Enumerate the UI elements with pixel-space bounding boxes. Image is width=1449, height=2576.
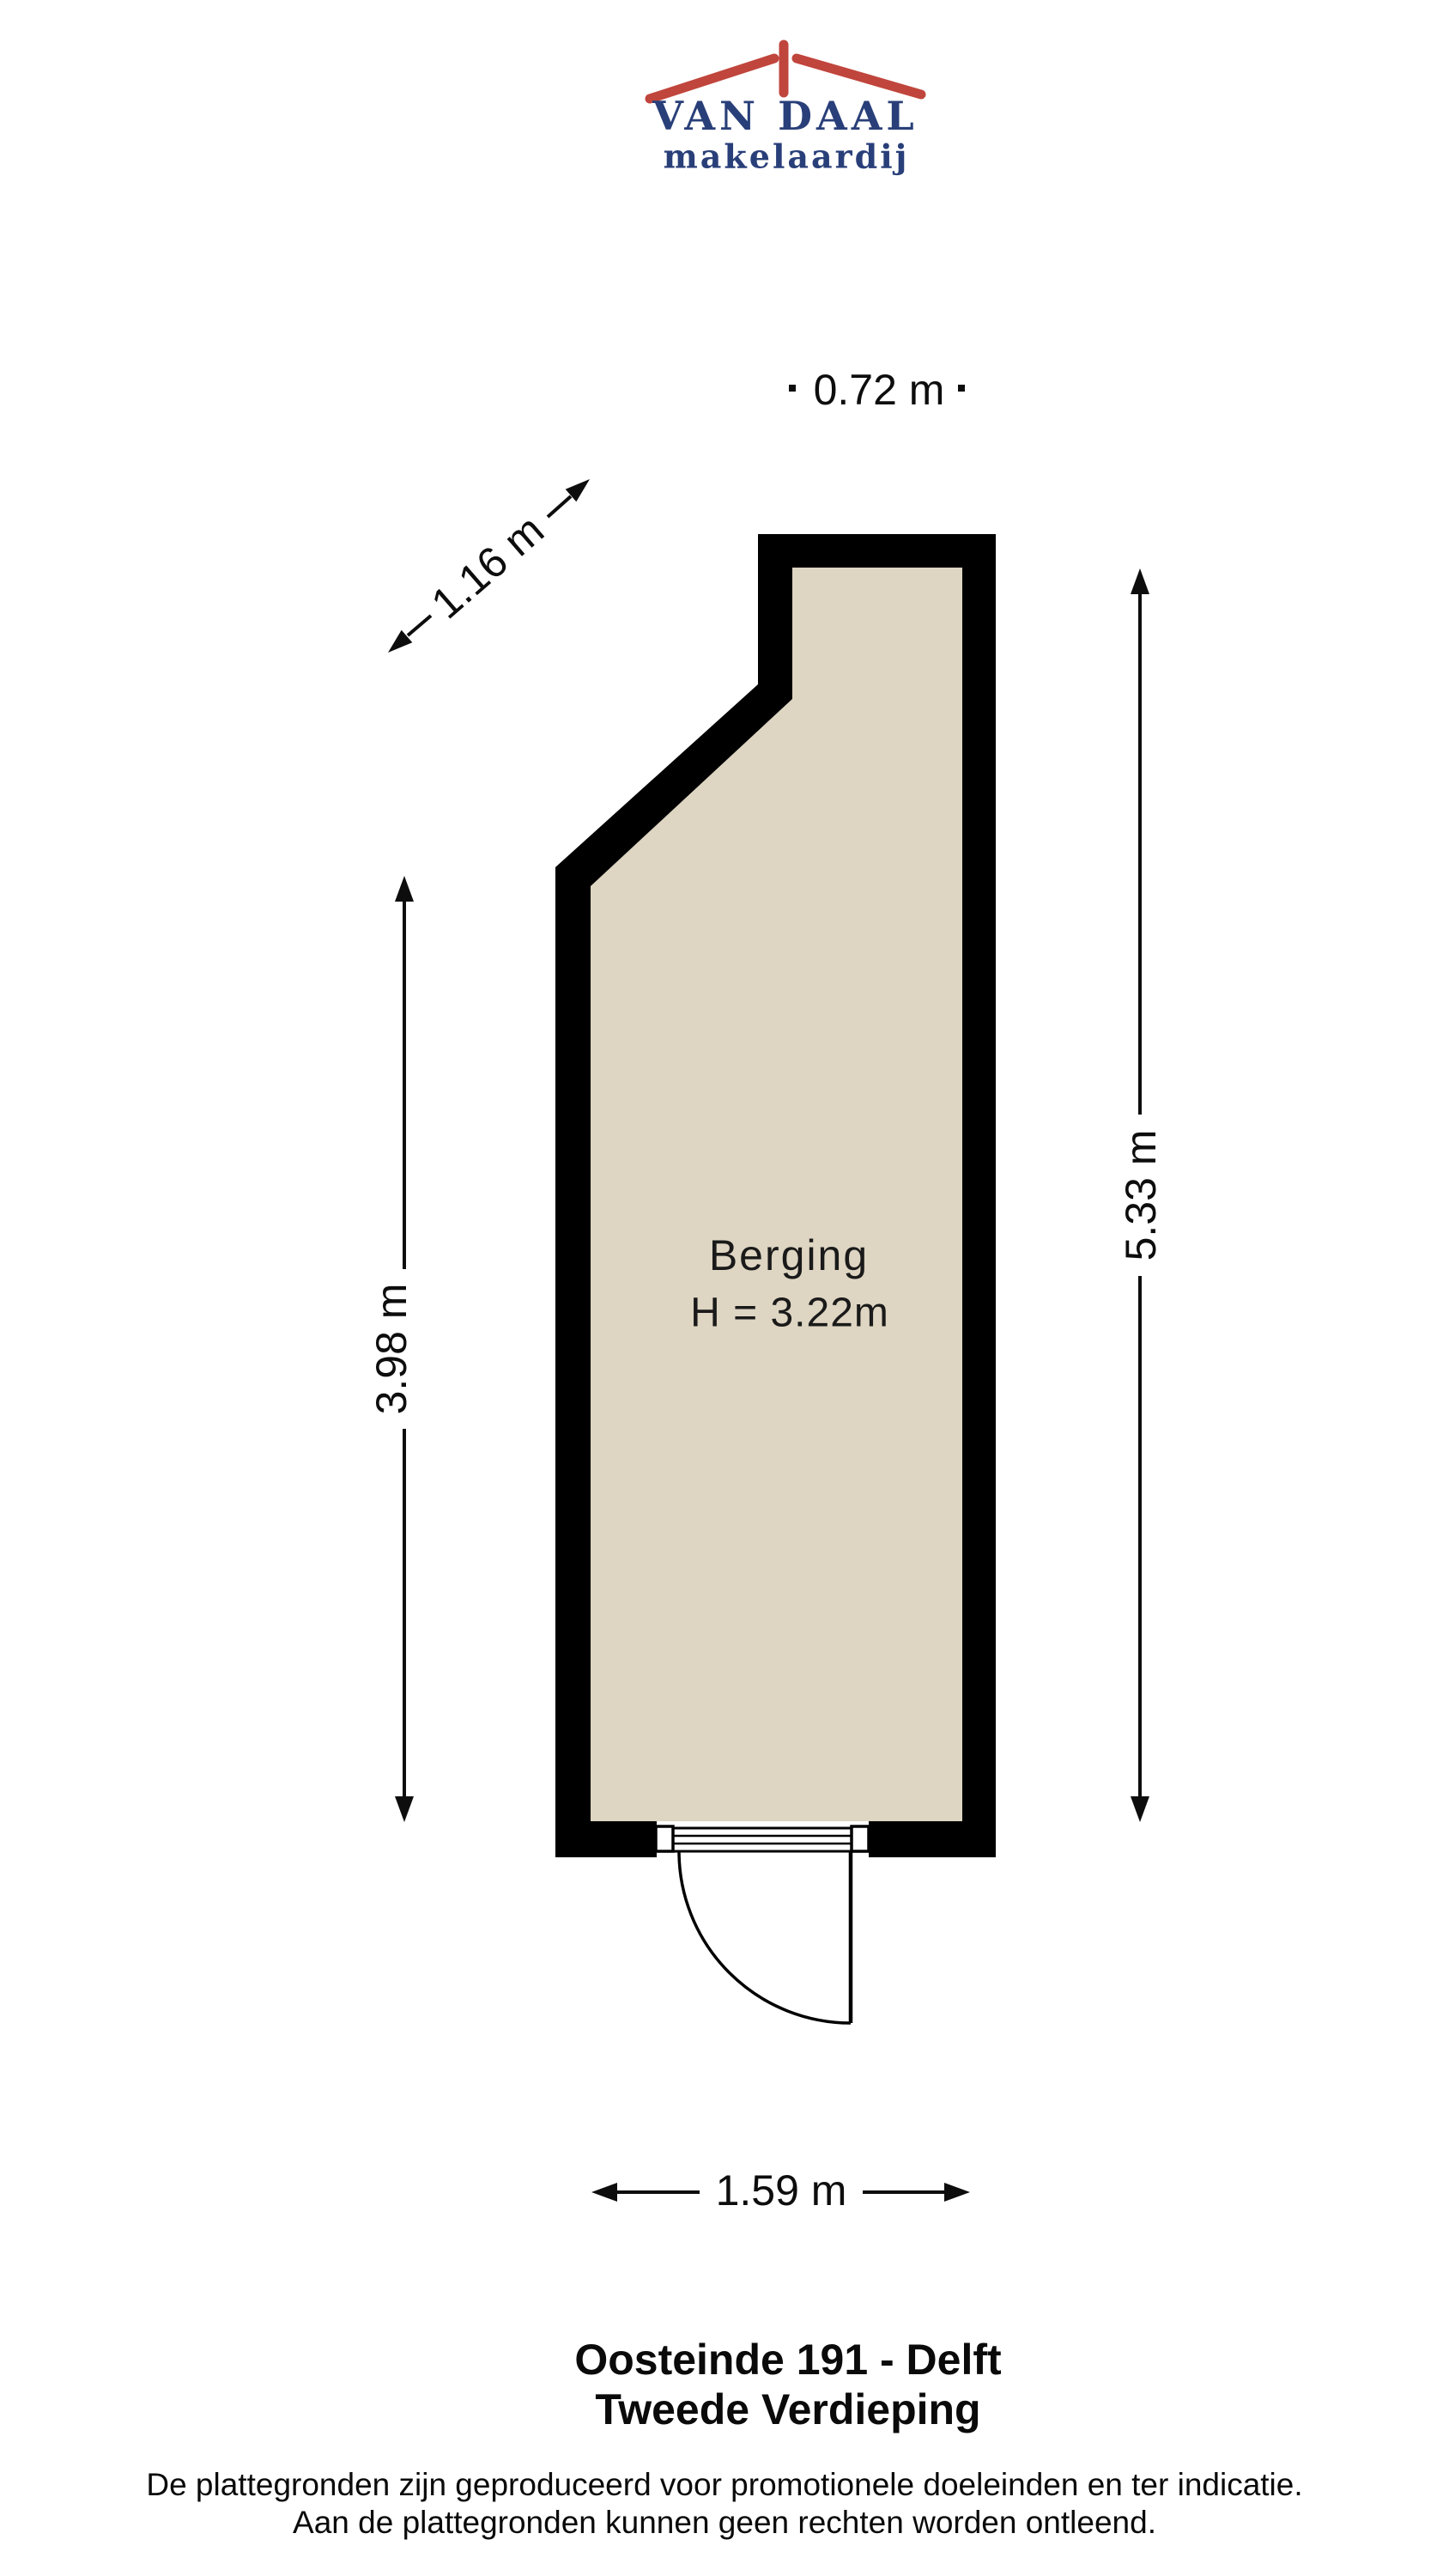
- room-floor: [591, 568, 962, 1821]
- dimension-label-left: 3.98 m: [367, 1284, 416, 1415]
- dimension-tick: [958, 385, 965, 392]
- logo-name: VAN DAAL: [652, 93, 919, 139]
- roof-right-slope: [797, 58, 921, 94]
- floorplan-page: VAN DAAL makelaardij 0.72 m 1.16 m 3.98 …: [0, 0, 1449, 2576]
- door-swing-arc: [679, 1851, 851, 2023]
- door-threshold: [673, 1828, 852, 1851]
- door-jamb-right: [852, 1826, 869, 1851]
- room-name-label: Berging: [709, 1230, 869, 1280]
- dimension-tick: [789, 385, 796, 392]
- address-title: Oosteinde 191 - Delft: [574, 2335, 1001, 2385]
- logo-roof-icon: [650, 45, 921, 99]
- dimension-label-bottom: 1.59 m: [716, 2166, 847, 2215]
- disclaimer-line-1: De plattegronden zijn geproduceerd voor …: [146, 2467, 1302, 2503]
- door-jamb-left: [656, 1826, 673, 1851]
- dimension-label-right: 5.33 m: [1116, 1130, 1166, 1261]
- floor-title: Tweede Verdieping: [595, 2385, 980, 2434]
- disclaimer-line-2: Aan de plattegronden kunnen geen rechten…: [293, 2505, 1156, 2541]
- room-height-label: H = 3.22m: [690, 1290, 889, 1337]
- dimension-label-top: 0.72 m: [814, 365, 945, 415]
- door-symbol: [656, 1821, 869, 2023]
- logo-subtitle: makelaardij: [664, 137, 910, 176]
